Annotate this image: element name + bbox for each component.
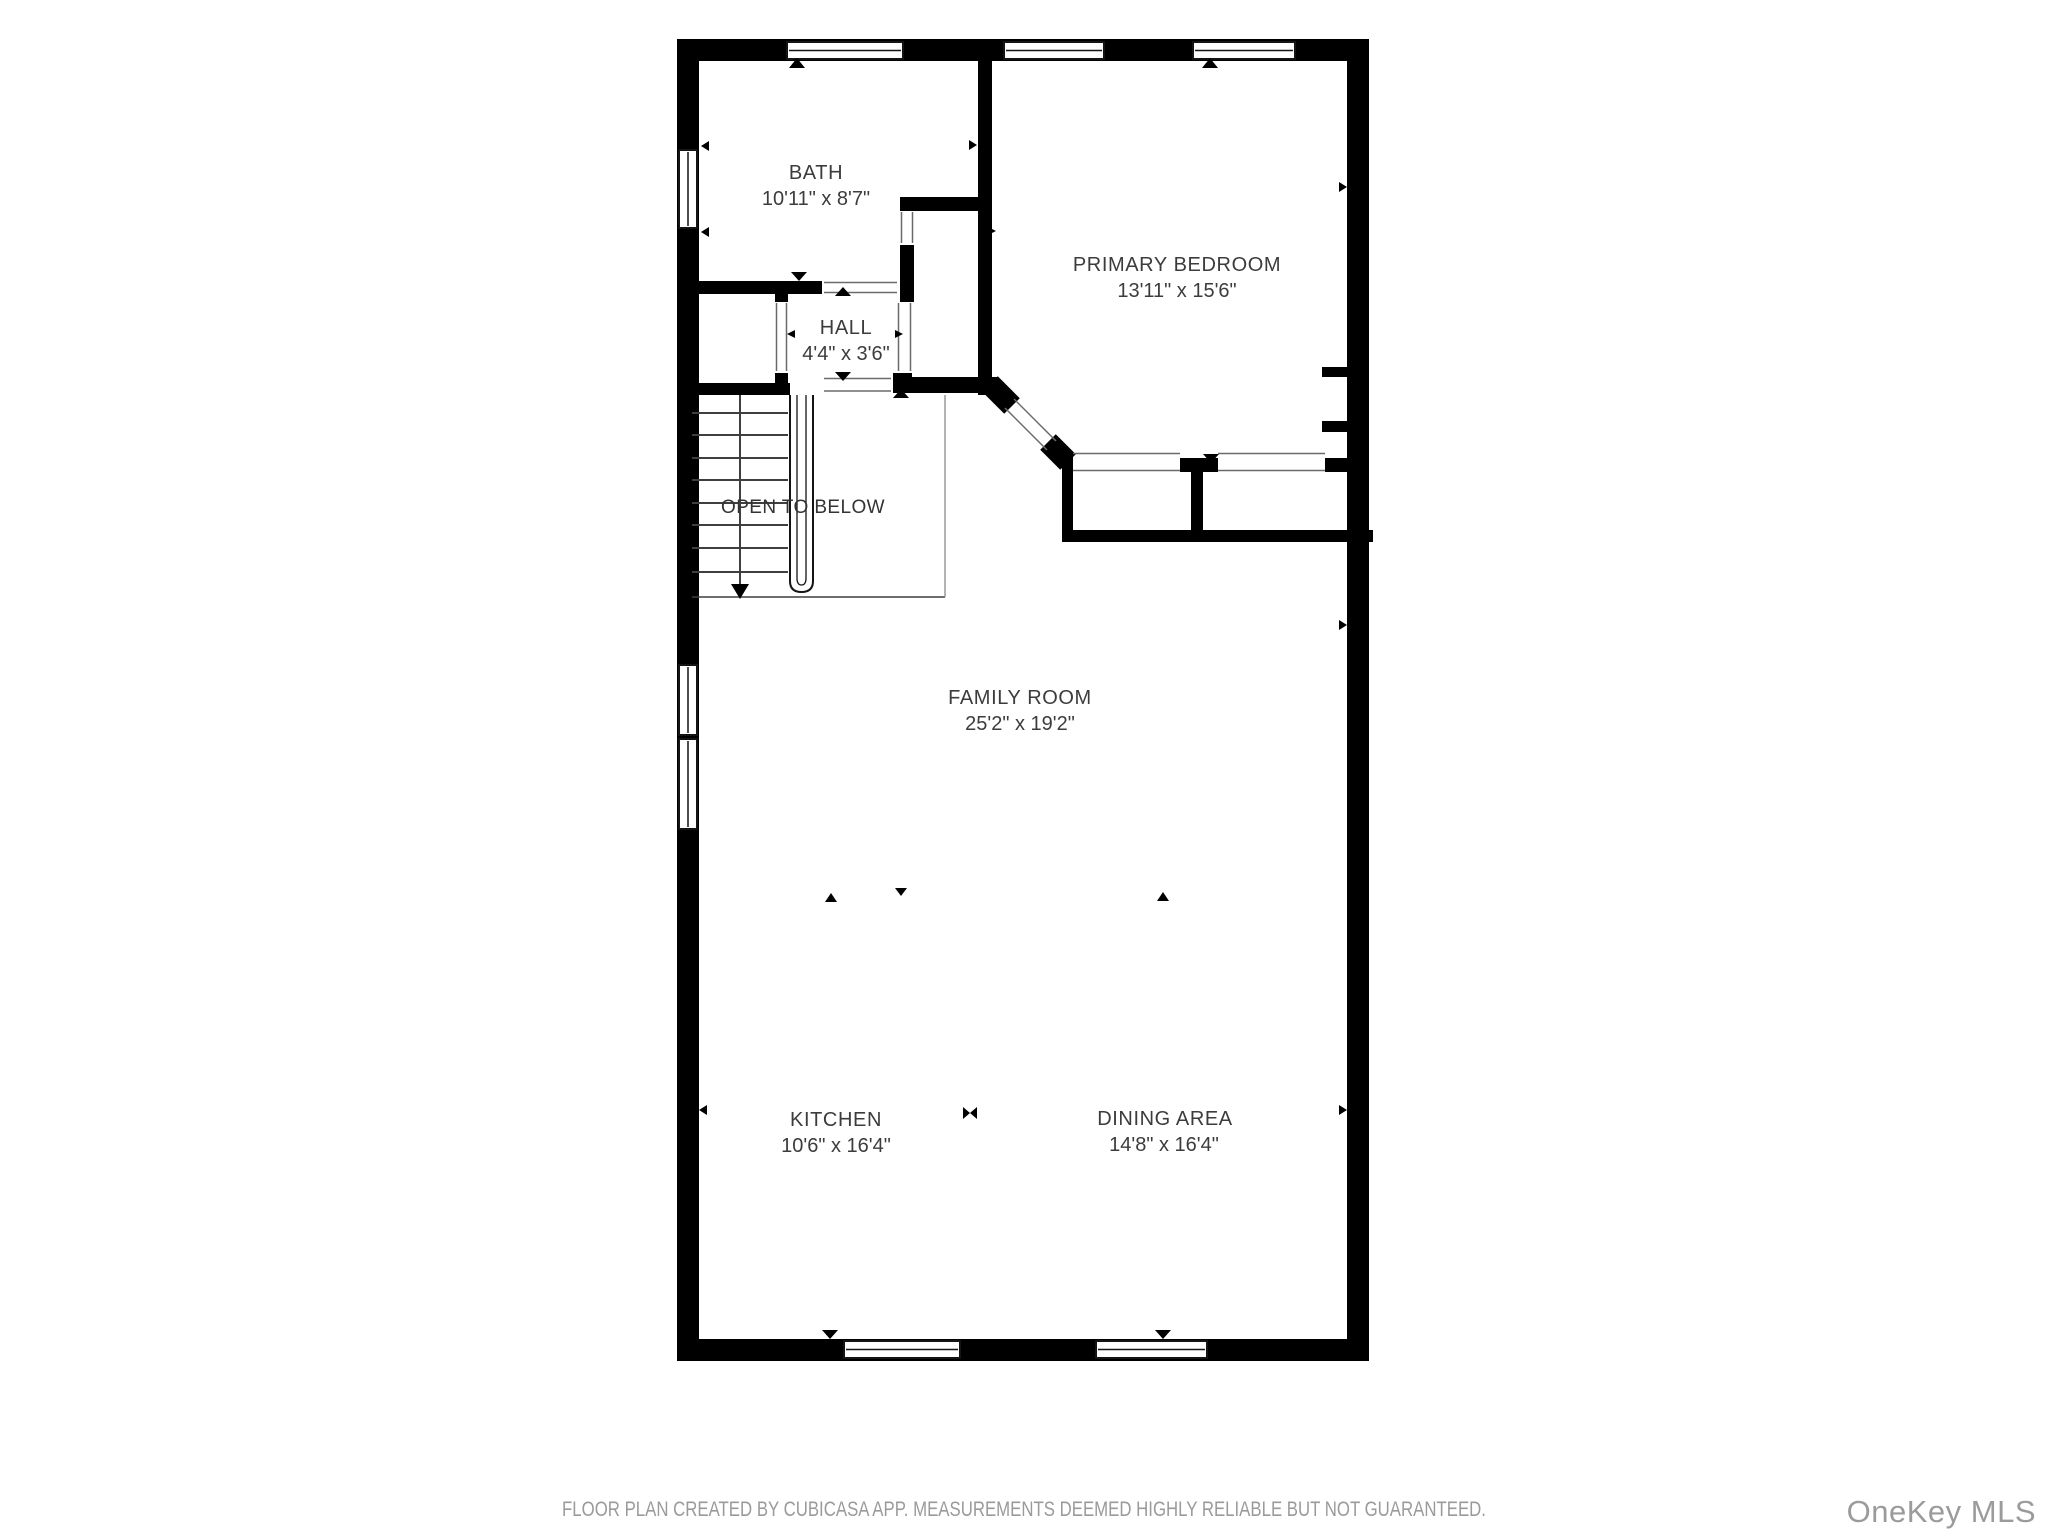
diagonal-door-opening — [1012, 406, 1048, 442]
wall-hall-bottom — [893, 377, 997, 393]
wall-closet-bottom — [1062, 530, 1373, 542]
diagonal-wall — [990, 384, 1068, 462]
wall-bath-door-jamb — [900, 245, 914, 302]
wall-hall-pillar-top-left — [775, 281, 788, 302]
window-marker-arrow-icon — [701, 227, 709, 237]
room-label-bath: BATH — [789, 162, 843, 184]
door-marker-arrow-icon — [835, 287, 851, 296]
wall-niche-stub-top — [1322, 367, 1347, 377]
disclaimer-text: FLOOR PLAN CREATED BY CUBICASA APP. MEAS… — [205, 1498, 1843, 1522]
room-labels: BATH 10'11" x 8'7" PRIMARY BEDROOM 13'11… — [721, 162, 1281, 1157]
wall-bath-bedroom-divider — [978, 39, 992, 395]
ceiling-marker-arrow-icon — [1157, 892, 1169, 901]
wall-marker-arrow-icon — [1339, 620, 1347, 630]
wall-niche-stub-bottom — [1322, 421, 1347, 432]
door-marker-arrow-icon — [969, 140, 977, 150]
wall-marker-arrow-icon — [699, 1105, 707, 1115]
wall-bath-closet-stub — [900, 197, 978, 211]
floor-plan: BATH 10'11" x 8'7" PRIMARY BEDROOM 13'11… — [0, 0, 2048, 1536]
room-dims-family-room: 25'2" x 19'2" — [965, 713, 1075, 735]
room-label-family-room: FAMILY ROOM — [948, 687, 1092, 709]
door-marker-arrow-icon — [791, 272, 807, 281]
window-marker-arrow-icon — [1155, 1330, 1171, 1339]
room-dims-hall: 4'4" x 3'6" — [802, 343, 889, 365]
room-dims-bath: 10'11" x 8'7" — [762, 188, 870, 210]
window-marker-arrow-icon — [822, 1330, 838, 1339]
room-dims-dining-area: 14'8" x 16'4" — [1109, 1134, 1219, 1156]
room-dims-primary-bedroom: 13'11" x 15'6" — [1117, 280, 1236, 302]
open-to-below-label: OPEN TO BELOW — [721, 497, 885, 518]
window-marker-arrow-icon — [701, 141, 709, 151]
room-label-primary-bedroom: PRIMARY BEDROOM — [1073, 254, 1281, 276]
wall-closet-divider — [1191, 472, 1203, 530]
wall-stair-top — [677, 383, 790, 395]
door-marker-arrow-icon — [835, 372, 851, 381]
bowtie-marker-icon — [963, 1107, 970, 1119]
wall-closet-right-stub — [1325, 458, 1357, 472]
wall-marker-arrow-icon — [1339, 1105, 1347, 1115]
wall-bath-bottom — [677, 281, 822, 294]
room-label-hall: HALL — [820, 317, 872, 339]
wall-outer-bottom — [677, 1339, 1369, 1361]
room-label-kitchen: KITCHEN — [790, 1109, 882, 1131]
ceiling-marker-arrow-icon — [825, 893, 837, 902]
wall-marker-arrow-icon — [1339, 182, 1347, 192]
bowtie-marker-icon — [970, 1107, 977, 1119]
ceiling-marker-arrow-icon — [895, 888, 907, 896]
room-dims-kitchen: 10'6" x 16'4" — [781, 1135, 891, 1157]
wall-outer-right — [1347, 39, 1369, 1361]
door-marker-arrow-icon — [787, 330, 795, 338]
onekey-mls-watermark: OneKey MLS — [1847, 1496, 2036, 1527]
room-label-dining-area: DINING AREA — [1097, 1108, 1233, 1130]
stair-railing-outer — [790, 395, 813, 592]
